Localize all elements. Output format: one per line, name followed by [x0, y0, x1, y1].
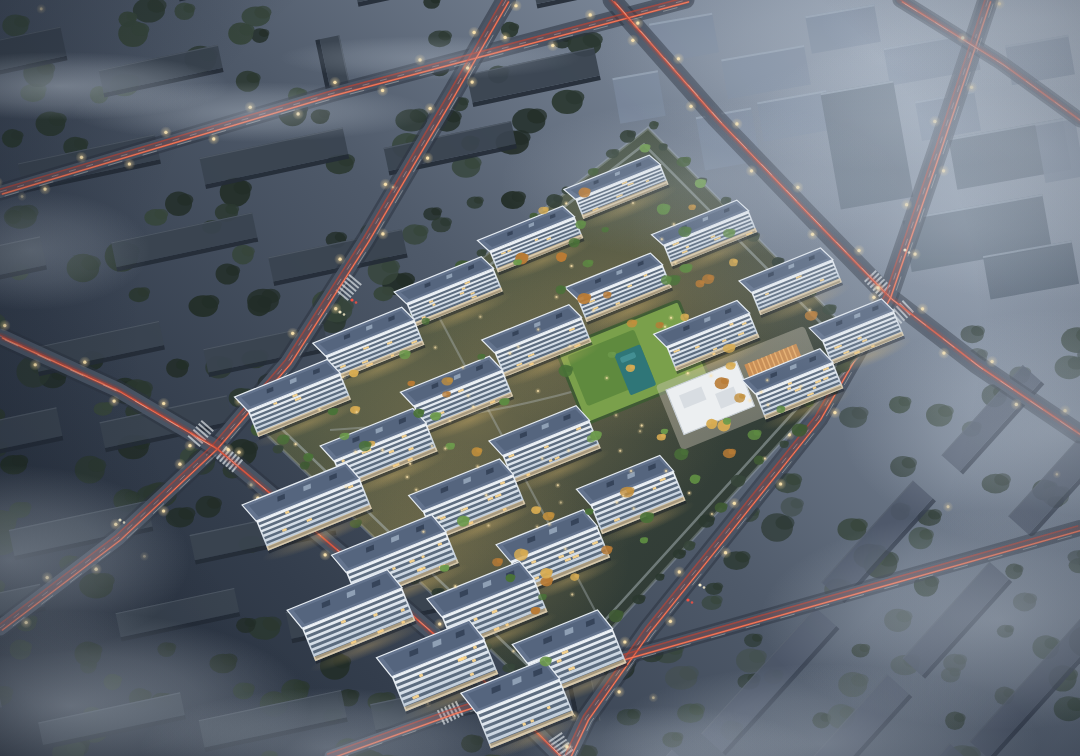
aerial-night-render: [0, 0, 1080, 756]
render-viewport: [0, 0, 1080, 756]
vignette: [0, 0, 1080, 756]
